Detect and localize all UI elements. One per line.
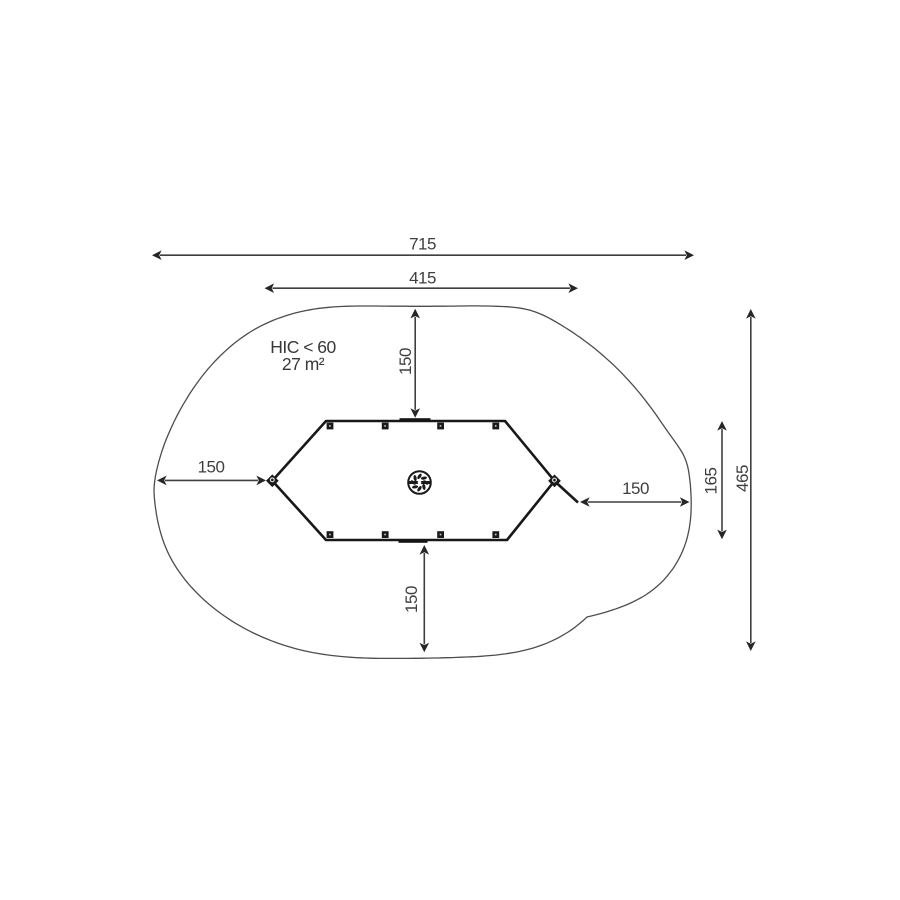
svg-text:715: 715 xyxy=(409,235,436,254)
svg-text:27 m²: 27 m² xyxy=(282,354,325,374)
svg-text:150: 150 xyxy=(622,479,649,498)
svg-text:415: 415 xyxy=(409,268,436,287)
svg-text:150: 150 xyxy=(396,348,415,375)
svg-text:150: 150 xyxy=(402,586,421,613)
svg-text:165: 165 xyxy=(702,468,721,495)
svg-text:150: 150 xyxy=(198,457,225,476)
svg-text:465: 465 xyxy=(733,465,752,492)
